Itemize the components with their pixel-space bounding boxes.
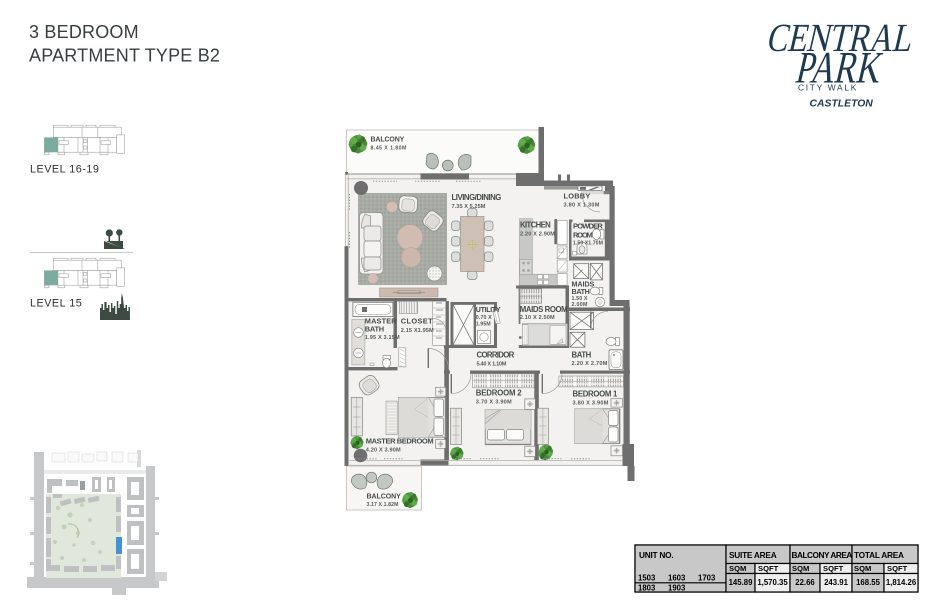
svg-text:1,814.26: 1,814.26 [886, 578, 917, 587]
svg-text:1803: 1803 [638, 584, 656, 593]
svg-text:2.15 X1.95M: 2.15 X1.95M [401, 328, 434, 334]
svg-text:CITY WALK: CITY WALK [798, 83, 858, 93]
svg-text:ROOM: ROOM [573, 231, 593, 240]
svg-text:22.66: 22.66 [795, 578, 815, 587]
svg-text:7.35 X 5.25M: 7.35 X 5.25M [452, 204, 486, 210]
svg-text:SQM: SQM [729, 564, 746, 573]
svg-text:LIVING/DINING: LIVING/DINING [452, 193, 502, 202]
svg-text:3.80 X 3.90M: 3.80 X 3.90M [573, 401, 609, 407]
svg-text:1.95M: 1.95M [476, 322, 491, 328]
svg-text:CLOSET: CLOSET [401, 317, 433, 326]
svg-text:SQFT: SQFT [887, 564, 908, 573]
svg-text:145.89: 145.89 [729, 578, 754, 587]
svg-text:BALCONY: BALCONY [371, 137, 405, 144]
svg-text:168.55: 168.55 [856, 578, 881, 587]
svg-text:1.95 X 3.15M: 1.95 X 3.15M [365, 335, 400, 341]
svg-text:LOBBY: LOBBY [564, 192, 591, 201]
svg-text:CASTLETON: CASTLETON [810, 99, 874, 110]
svg-text:1703: 1703 [698, 574, 716, 583]
svg-text:LEVEL 16-19: LEVEL 16-19 [30, 164, 99, 176]
svg-text:KITCHEN: KITCHEN [520, 221, 551, 230]
svg-text:UTILITY: UTILITY [476, 307, 501, 314]
svg-text:2.00M: 2.00M [572, 302, 588, 308]
svg-text:3 BEDROOM: 3 BEDROOM [29, 22, 139, 42]
svg-text:2.10 X 2.50M: 2.10 X 2.50M [520, 315, 555, 321]
svg-text:BATH: BATH [572, 351, 592, 360]
svg-text:POWDER: POWDER [573, 222, 603, 231]
svg-text:3.17 X 1.82M: 3.17 X 1.82M [367, 502, 399, 508]
svg-text:UNIT NO.: UNIT NO. [639, 550, 673, 560]
svg-text:SUITE AREA: SUITE AREA [729, 550, 777, 560]
svg-text:LEVEL 15: LEVEL 15 [30, 298, 82, 310]
svg-text:APARTMENT TYPE B2: APARTMENT TYPE B2 [29, 46, 220, 66]
svg-text:1.50 X1.70M: 1.50 X1.70M [573, 241, 603, 247]
svg-text:MAIDS ROOM: MAIDS ROOM [520, 305, 568, 314]
svg-text:SQFT: SQFT [758, 564, 779, 573]
svg-text:BATH: BATH [365, 325, 385, 334]
svg-text:1603: 1603 [668, 574, 686, 583]
svg-text:SQM: SQM [792, 564, 809, 573]
svg-text:MASTER BEDROOM: MASTER BEDROOM [366, 437, 434, 446]
svg-text:BEDROOM 1: BEDROOM 1 [573, 390, 618, 399]
svg-text:BALCONY AREA: BALCONY AREA [792, 550, 853, 560]
svg-text:TOTAL AREA: TOTAL AREA [854, 550, 904, 560]
svg-text:1503: 1503 [638, 574, 656, 583]
svg-text:3.80 X 1.30M: 3.80 X 1.30M [564, 203, 600, 209]
svg-text:1,570.35: 1,570.35 [757, 578, 788, 587]
svg-text:BALCONY: BALCONY [367, 494, 402, 501]
svg-text:CORRIDOR: CORRIDOR [477, 351, 515, 360]
svg-text:0.70 X: 0.70 X [476, 315, 492, 321]
svg-text:243.91: 243.91 [824, 578, 849, 587]
svg-text:4.20 X 3.90M: 4.20 X 3.90M [366, 448, 401, 454]
svg-text:SQM: SQM [854, 564, 871, 573]
svg-text:2.20 X 2.70M: 2.20 X 2.70M [572, 361, 608, 367]
svg-text:BEDROOM 2: BEDROOM 2 [476, 389, 522, 398]
svg-text:SQFT: SQFT [823, 564, 844, 573]
svg-text:2.20 X 2.90M: 2.20 X 2.90M [520, 232, 555, 238]
svg-text:BATH: BATH [572, 287, 591, 296]
svg-text:1903: 1903 [668, 584, 686, 593]
svg-text:3.70 X 3.90M: 3.70 X 3.90M [476, 400, 512, 406]
svg-text:8.45 X 1.80M: 8.45 X 1.80M [371, 146, 407, 152]
svg-text:5.40 X 1.10M: 5.40 X 1.10M [477, 362, 507, 368]
